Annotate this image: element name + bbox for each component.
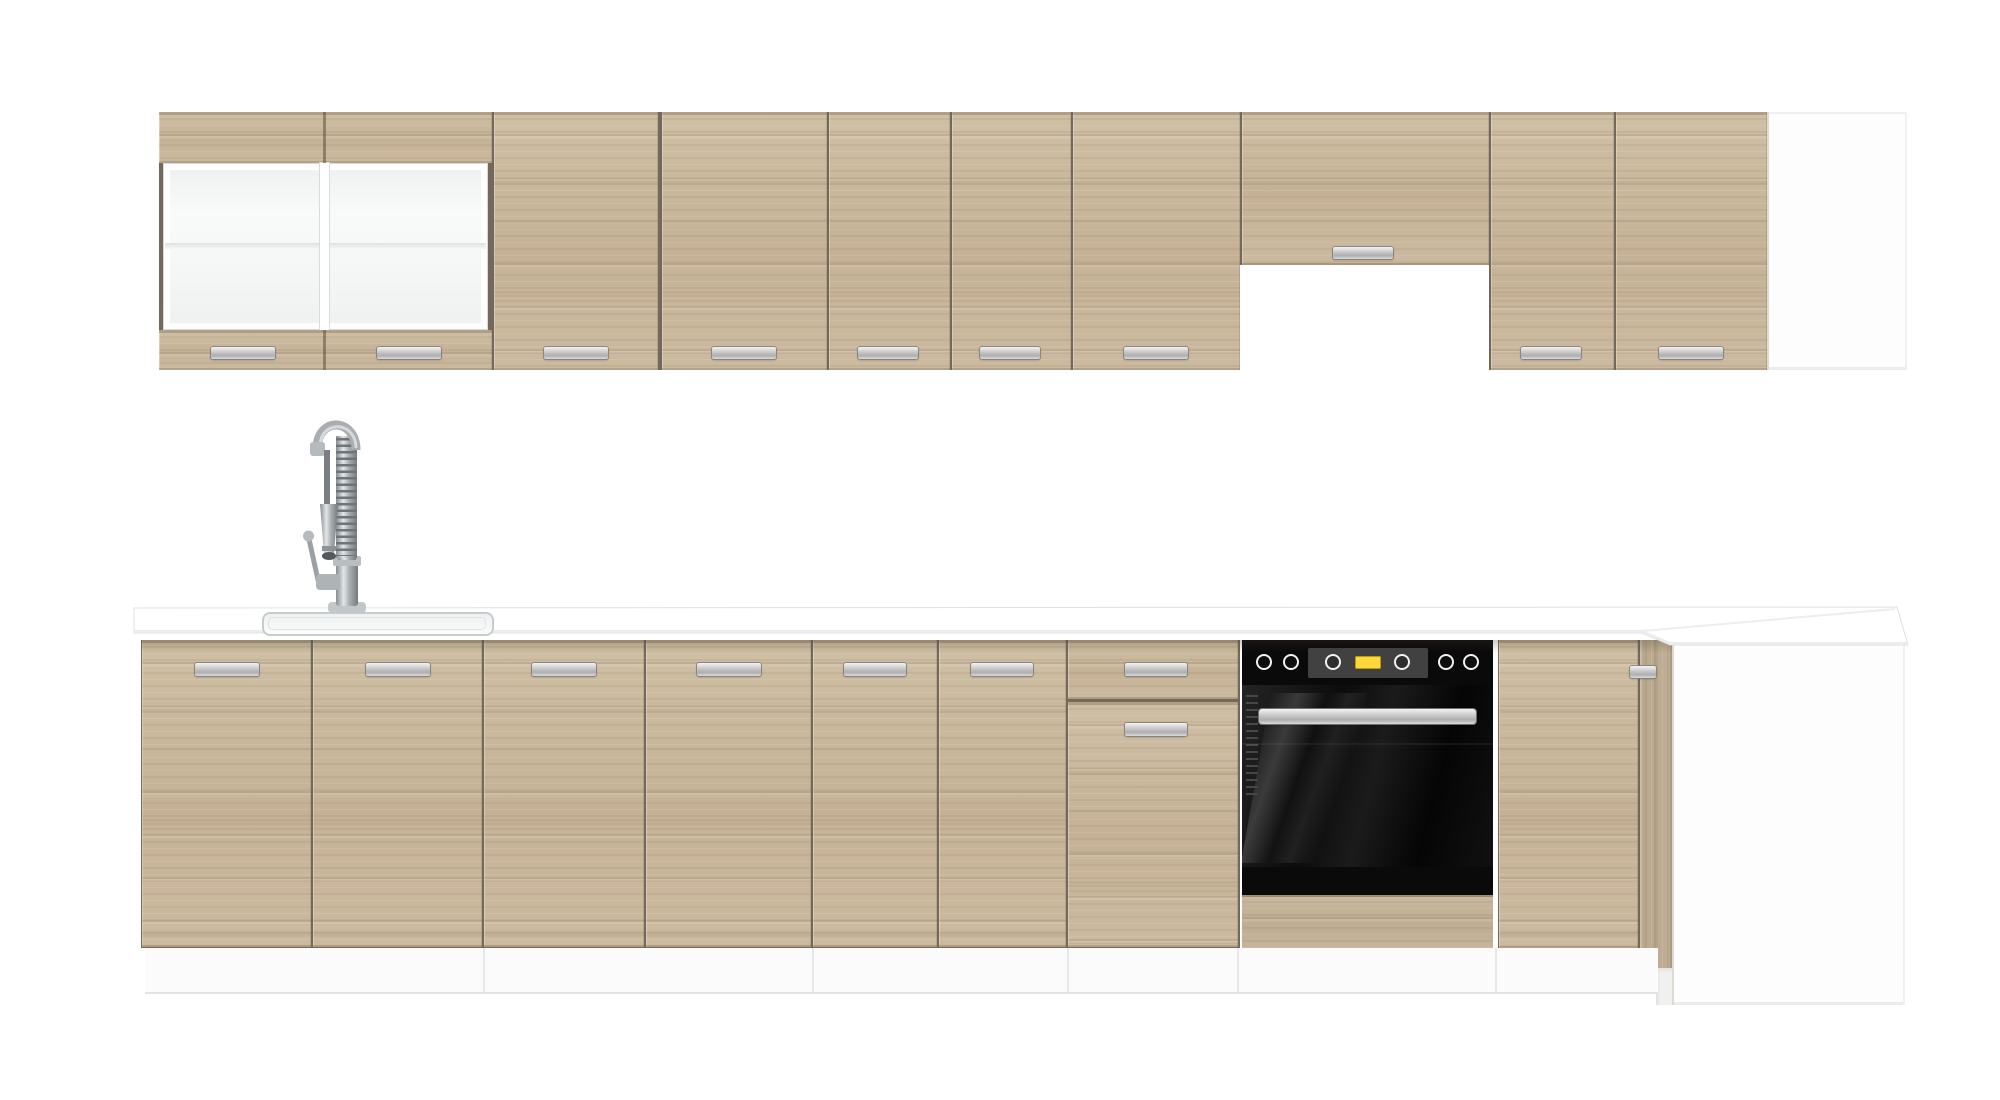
base-cabinet-row <box>0 400 2000 1100</box>
plinth-seam-4 <box>1237 948 1239 992</box>
glass-door-gap-top <box>323 112 326 163</box>
oven-door <box>1242 685 1493 867</box>
oven-vent-grille <box>1246 695 1258 799</box>
oven-knob-2 <box>1283 654 1299 670</box>
base-door-5-handle <box>844 663 906 676</box>
hood-cabinet-handle <box>1333 247 1393 259</box>
wall-door-1-handle <box>544 347 608 359</box>
oven-knob-1 <box>1256 654 1272 670</box>
drawer-unit-door <box>1068 702 1238 947</box>
drawer-unit-door-handle <box>1125 723 1187 736</box>
cooker-hood-recess <box>1240 265 1489 366</box>
base-door-5 <box>813 640 937 947</box>
plinth <box>145 948 1658 994</box>
oven-knob-5 <box>1438 654 1454 670</box>
wall-cabinet-row <box>0 0 2000 400</box>
wall-door-4 <box>952 112 1071 370</box>
oven-knob-4 <box>1394 654 1410 670</box>
wall-door-6 <box>1491 112 1614 370</box>
oven-plinth-filler <box>1242 895 1493 948</box>
tap-inner-pipe <box>324 450 330 510</box>
kitchen-render <box>0 0 2000 1100</box>
wall-door-2 <box>662 112 827 370</box>
base-door-3 <box>484 640 644 947</box>
oven-door-handle <box>1259 709 1476 724</box>
wall-door-4-handle <box>980 347 1040 359</box>
tap-spray-mount <box>310 442 325 456</box>
wall-door-5 <box>1073 112 1240 370</box>
tap-spray-ring <box>322 546 336 551</box>
plinth-seam-2 <box>812 948 814 992</box>
oven-knob-3 <box>1325 654 1341 670</box>
glass-door-handle-right <box>377 347 441 359</box>
plinth-seam-5 <box>1495 948 1497 992</box>
glass-wall-cabinet <box>159 112 492 370</box>
tap-lever-mount <box>316 574 340 590</box>
wall-end-panel <box>1767 112 1907 370</box>
built-in-oven <box>1242 640 1493 895</box>
wall-door-3 <box>829 112 950 370</box>
base-door-6 <box>939 640 1066 947</box>
oven-display <box>1355 656 1381 669</box>
base-door-3-handle <box>532 663 596 676</box>
base-door-1 <box>142 640 311 947</box>
wall-door-3-handle <box>858 347 918 359</box>
glass-door-gap-bottom <box>323 330 326 370</box>
hood-cabinet <box>1242 112 1489 265</box>
drawer-unit <box>1068 640 1238 947</box>
tap-lever-knob <box>303 531 314 542</box>
glass-door-handle-left <box>211 347 275 359</box>
base-door-6-handle <box>971 663 1033 676</box>
wall-door-5-handle <box>1124 347 1188 359</box>
wall-door-6-handle <box>1521 347 1581 359</box>
wall-door-1 <box>494 112 658 370</box>
glass-door-divider <box>320 163 329 330</box>
corner-door-handle <box>1630 666 1656 678</box>
drawer-handle <box>1125 663 1187 676</box>
base-door-2 <box>313 640 482 947</box>
wall-door-7-handle <box>1659 347 1723 359</box>
wall-door-7 <box>1616 112 1767 370</box>
corner-base-door <box>1499 640 1638 948</box>
kitchen-tap <box>296 406 372 620</box>
tap-lever <box>309 539 318 580</box>
tap-nozzle <box>322 552 336 560</box>
plinth-seam-1 <box>483 948 485 992</box>
base-door-4 <box>646 640 811 947</box>
base-door-2-handle <box>366 663 430 676</box>
plinth-seam-3 <box>1067 948 1069 992</box>
base-door-4-handle <box>697 663 761 676</box>
oven-knob-6 <box>1463 654 1479 670</box>
base-door-1-handle <box>195 663 259 676</box>
base-end-panel <box>1672 637 1905 1005</box>
corner-filler-strip <box>1640 640 1672 970</box>
oven-door-glass-top-line <box>1242 743 1493 745</box>
wall-door-2-handle <box>712 347 776 359</box>
